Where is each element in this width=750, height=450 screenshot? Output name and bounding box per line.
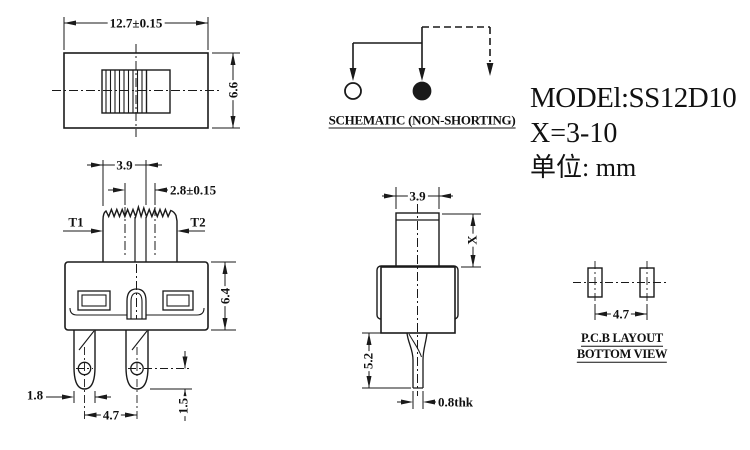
open-contact-icon bbox=[345, 83, 361, 99]
schematic-caption: SCHEMATIC (NON-SHORTING) bbox=[329, 114, 516, 129]
engineering-drawing: 12.7±0.15 6.6 SCHEMATIC (NON-SHORTING) M… bbox=[0, 0, 750, 450]
top-view-width-dimension: 12.7±0.15 bbox=[108, 17, 165, 30]
side-thickness-dimension: 0.8thk bbox=[438, 396, 473, 409]
front-body-height-dimension: 6.4 bbox=[219, 286, 232, 306]
pcb-caption-line1: P.C.B LAYOUT bbox=[581, 332, 663, 347]
closed-contact-icon bbox=[414, 83, 431, 100]
front-view-drawing bbox=[46, 160, 236, 421]
side-leg-length-dimension: 5.2 bbox=[362, 351, 375, 371]
travel-range-text: X=3-10 bbox=[530, 120, 617, 148]
pcb-caption-line2: BOTTOM VIEW bbox=[577, 348, 667, 363]
model-number-text: MODEl:SS12D10 bbox=[530, 84, 736, 113]
front-hole-offset-dimension: 1.5 bbox=[177, 396, 190, 416]
side-knob-height-dimension: X bbox=[466, 233, 479, 246]
front-knob-width-dimension: 3.9 bbox=[114, 159, 134, 172]
pcb-pitch-dimension: 4.7 bbox=[611, 308, 631, 321]
terminal-t1-label: T1 bbox=[68, 216, 83, 229]
schematic-drawing bbox=[345, 27, 493, 100]
front-travel-dimension: 2.8±0.15 bbox=[170, 184, 216, 197]
side-view-drawing bbox=[362, 187, 481, 409]
terminal-t2-label: T2 bbox=[190, 216, 205, 229]
front-pin-pitch-dimension: 4.7 bbox=[101, 409, 121, 422]
unit-text: 单位: mm bbox=[530, 155, 636, 181]
front-leg-width-dimension: 1.8 bbox=[25, 389, 45, 402]
top-view-drawing bbox=[52, 17, 240, 137]
top-view-height-dimension: 6.6 bbox=[227, 80, 240, 100]
side-knob-width-dimension: 3.9 bbox=[407, 190, 427, 203]
drawing-linework bbox=[0, 0, 750, 450]
